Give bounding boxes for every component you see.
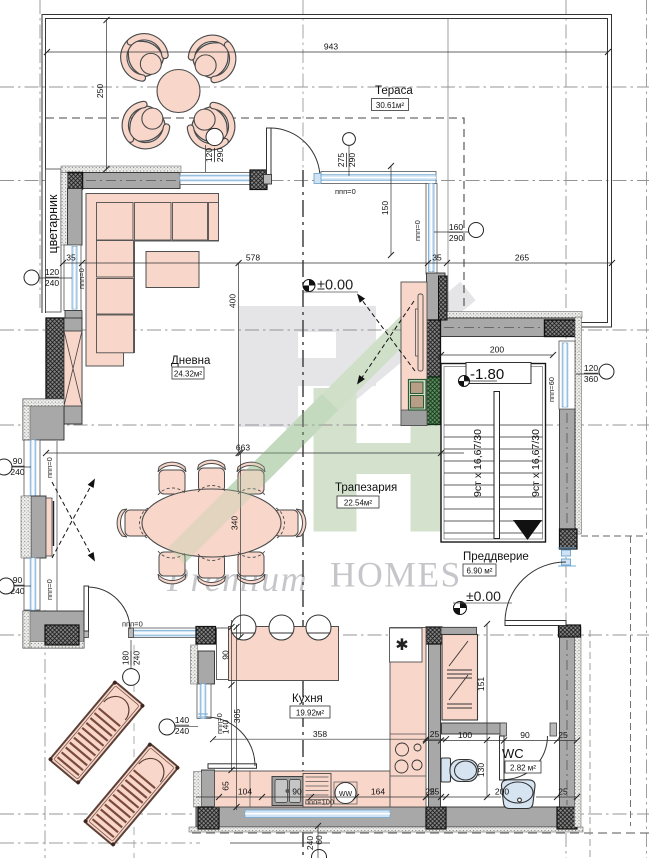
svg-text:358: 358 (313, 729, 327, 739)
svg-text:ппп=0: ппп=0 (45, 457, 54, 478)
svg-text:22.54м²: 22.54м² (344, 499, 373, 508)
svg-text:240: 240 (175, 726, 189, 736)
svg-text:663: 663 (236, 443, 250, 453)
svg-text:ппп=60: ппп=60 (547, 377, 556, 402)
svg-text:25: 25 (430, 729, 440, 739)
svg-text:6.90 м²: 6.90 м² (467, 567, 493, 576)
svg-text:140: 140 (175, 715, 189, 725)
svg-text:35: 35 (66, 253, 76, 263)
svg-text:360: 360 (584, 374, 598, 384)
svg-text:Дневна: Дневна (171, 355, 211, 367)
svg-text:150: 150 (380, 201, 390, 215)
svg-text:ппп=0: ппп=0 (215, 713, 224, 734)
svg-text:120: 120 (45, 267, 59, 277)
svg-text:ппп=0: ппп=0 (335, 187, 356, 196)
svg-text:240: 240 (132, 651, 142, 665)
svg-text:Преддверие: Преддверие (463, 551, 529, 563)
svg-text:90: 90 (13, 456, 23, 466)
svg-text:25: 25 (558, 787, 568, 797)
svg-text:100: 100 (458, 730, 472, 740)
svg-text:HOMES: HOMES (330, 555, 462, 595)
svg-text:ппп=0: ппп=0 (413, 220, 422, 241)
svg-text:60: 60 (314, 835, 324, 845)
svg-text:65: 65 (221, 781, 231, 791)
svg-text:ппп=100: ппп=100 (305, 798, 334, 807)
svg-text:✱: ✱ (395, 637, 408, 654)
svg-text:290: 290 (449, 233, 463, 243)
svg-text:180: 180 (121, 651, 131, 665)
svg-text:578: 578 (246, 253, 260, 263)
svg-text:ппп=0: ппп=0 (77, 268, 86, 289)
svg-text:WC: WC (502, 746, 524, 761)
svg-text:±0.00: ±0.00 (466, 588, 501, 604)
svg-text:160: 160 (449, 222, 463, 232)
svg-text:Тераса: Тераса (375, 85, 413, 97)
svg-text:240: 240 (45, 278, 59, 288)
svg-text:90: 90 (221, 650, 231, 660)
svg-text:Трапезария: Трапезария (335, 482, 397, 494)
svg-text:120: 120 (584, 363, 598, 373)
svg-text:200: 200 (495, 787, 509, 797)
svg-text:25: 25 (558, 730, 568, 740)
svg-text:9ст х 16,67/30: 9ст х 16,67/30 (472, 429, 484, 497)
svg-text:120: 120 (204, 148, 214, 162)
svg-text:200: 200 (490, 345, 504, 355)
svg-text:19.92м²: 19.92м² (296, 709, 325, 718)
svg-text:290: 290 (215, 148, 225, 162)
svg-text:305: 305 (232, 709, 242, 723)
svg-text:130: 130 (476, 763, 486, 777)
svg-text:35: 35 (432, 253, 442, 263)
svg-text:90: 90 (13, 575, 23, 585)
svg-text:ппп=0: ппп=0 (45, 579, 54, 600)
svg-text:2.82 м²: 2.82 м² (510, 764, 536, 773)
svg-text:290: 290 (347, 153, 357, 167)
svg-text:104: 104 (238, 787, 252, 797)
svg-text:265: 265 (515, 253, 529, 263)
svg-text:250: 250 (95, 84, 105, 98)
svg-text:340: 340 (230, 516, 240, 530)
svg-text:ппп=0: ппп=0 (122, 620, 143, 629)
svg-text:Кухня: Кухня (292, 693, 323, 705)
svg-text:943: 943 (324, 42, 338, 52)
svg-text:151: 151 (476, 677, 486, 691)
svg-text:240: 240 (10, 467, 24, 477)
svg-text:90: 90 (292, 787, 302, 797)
svg-text:400: 400 (228, 294, 238, 308)
svg-text:164: 164 (371, 787, 385, 797)
svg-text:9ст х 16,67/30: 9ст х 16,67/30 (530, 429, 542, 497)
svg-text:цветарник: цветарник (46, 194, 60, 254)
svg-text:90: 90 (520, 730, 530, 740)
svg-text:275: 275 (336, 153, 346, 167)
svg-text:24.32м²: 24.32м² (174, 370, 203, 379)
svg-text:-1.80: -1.80 (470, 366, 504, 383)
svg-text:±0.00: ±0.00 (317, 278, 353, 294)
svg-text:30.61м²: 30.61м² (376, 101, 405, 110)
svg-text:25: 25 (425, 787, 435, 797)
svg-text:Premium: Premium (166, 559, 308, 599)
